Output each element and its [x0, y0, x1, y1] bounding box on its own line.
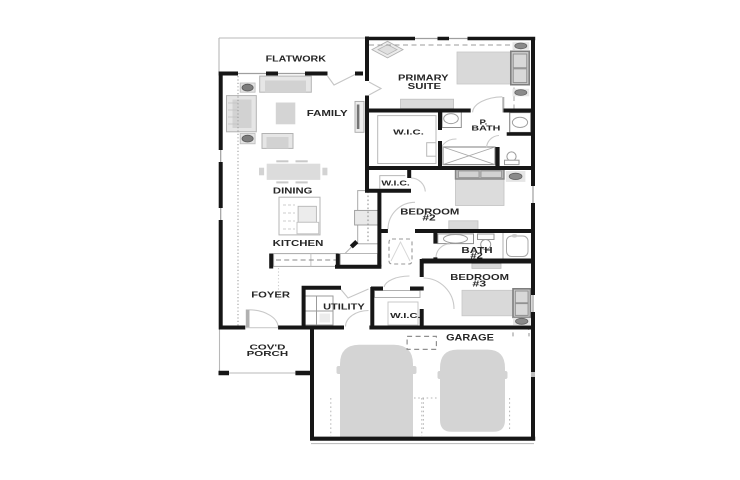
svg-text:FLATWORK: FLATWORK: [266, 53, 327, 63]
svg-text:FAMILY: FAMILY: [307, 108, 348, 118]
svg-text:W.I.C.: W.I.C.: [393, 130, 424, 137]
svg-text:#2: #2: [422, 214, 436, 223]
svg-text:W.I.C.: W.I.C.: [381, 180, 410, 187]
svg-text:GARAGE: GARAGE: [446, 332, 494, 342]
svg-text:W.I.C.: W.I.C.: [390, 313, 421, 320]
svg-text:SUITE: SUITE: [408, 81, 442, 91]
svg-text:#2: #2: [470, 252, 483, 261]
svg-text:KITCHEN: KITCHEN: [273, 238, 324, 248]
svg-text:#3: #3: [472, 279, 487, 288]
svg-text:FOYER: FOYER: [251, 289, 290, 299]
svg-text:BATH: BATH: [471, 123, 500, 132]
svg-text:UTILITY: UTILITY: [323, 301, 365, 311]
svg-text:DINING: DINING: [273, 185, 313, 195]
svg-text:PORCH: PORCH: [247, 349, 289, 358]
